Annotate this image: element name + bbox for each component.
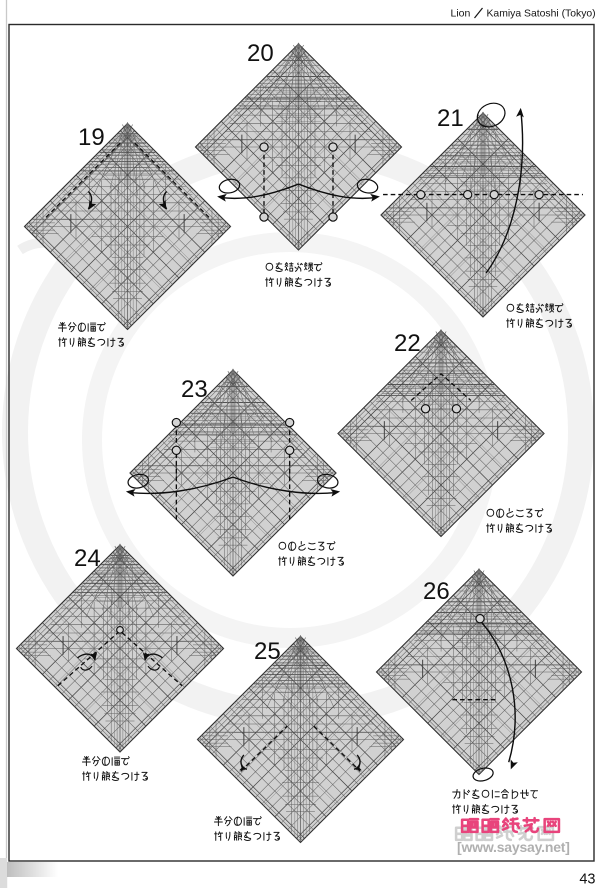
svg-text:Kamiya Satoshi (Tokyo): Kamiya Satoshi (Tokyo) [487,9,596,20]
svg-text:22: 22 [394,330,421,357]
svg-text:[www.saysay.net]: [www.saysay.net] [457,839,570,855]
svg-text:43: 43 [579,872,595,888]
svg-text:26: 26 [423,578,450,605]
svg-text:24: 24 [74,545,101,572]
svg-text:20: 20 [247,40,274,67]
svg-text:23: 23 [181,376,208,403]
svg-text:Lion: Lion [451,8,471,20]
svg-text:19: 19 [78,124,105,151]
svg-text:21: 21 [437,105,464,132]
svg-text:25: 25 [254,638,281,665]
